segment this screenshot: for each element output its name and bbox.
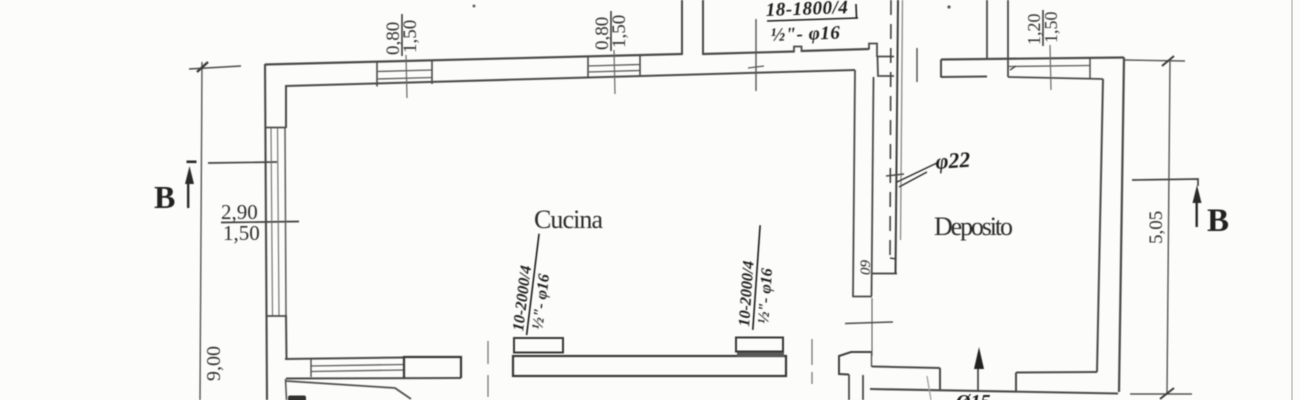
svg-text:09: 09 [858, 260, 874, 276]
svg-text:φ22: φ22 [935, 147, 972, 174]
svg-text:5,05: 5,05 [1146, 211, 1167, 244]
svg-text:B: B [154, 179, 175, 215]
svg-text:Deposito: Deposito [934, 212, 1013, 241]
svg-text:Ø15: Ø15 [955, 391, 990, 400]
svg-text:18-1800/4: 18-1800/4 [765, 0, 848, 21]
svg-text:1,50: 1,50 [1041, 12, 1061, 44]
svg-text:B: B [1207, 203, 1229, 239]
svg-text:1,50: 1,50 [223, 221, 260, 245]
svg-text:1,50: 1,50 [400, 20, 421, 53]
svg-text:½"- φ16: ½"- φ16 [770, 23, 840, 46]
svg-text:9,00: 9,00 [203, 346, 225, 381]
svg-text:Cucina: Cucina [534, 205, 603, 234]
svg-text:1,50: 1,50 [609, 15, 630, 48]
